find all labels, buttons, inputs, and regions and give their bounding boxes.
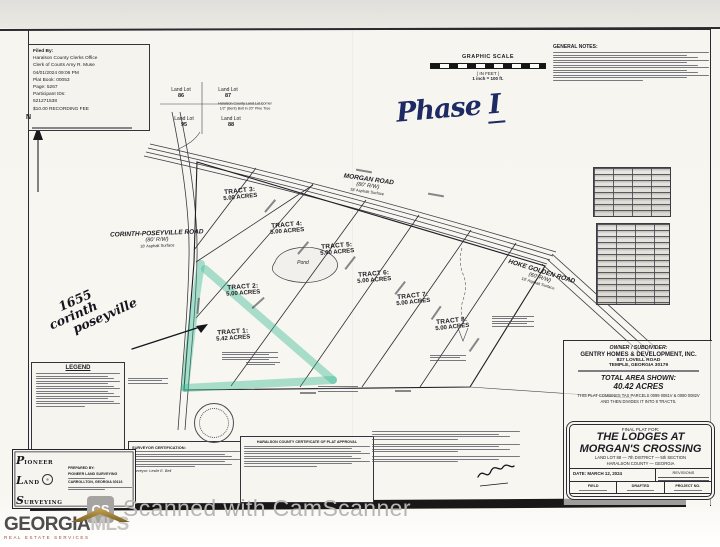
stamp-line: Filed By: [33, 48, 145, 55]
legend-title: LEGEND [36, 365, 120, 371]
prepared-by-block: PREPARED BY: PIONEER LAND SURVEYING CARR… [68, 466, 132, 491]
drainage-line [460, 248, 465, 324]
graphic-scale-title: GRAPHIC SCALE [428, 54, 548, 60]
land-lot-label: Land Lot95 [174, 116, 193, 128]
closure-statement-text [372, 431, 520, 466]
adjoiner-note [430, 355, 466, 362]
corinth-poseyville-road-label: CORINTH-POSEYVILLE ROAD (80' R/W) 18' As… [110, 228, 204, 249]
tract-1-label: TRACT 1:5.42 ACRES [216, 327, 251, 342]
plat-title-line2: MORGAN'S CROSSING [570, 444, 711, 456]
stamp-line: Plat Book: 00053 [33, 77, 145, 84]
total-area-value: 40.42 ACRES [566, 382, 711, 391]
adjoiner-note [246, 362, 280, 367]
plat-title-line1: THE LODGES AT [570, 432, 711, 444]
georgia-mls-logo: GEORGIAMLS REAL ESTATE SERVICES [4, 515, 129, 540]
clerk-filing-stamp: Filed By: Haralson County Clerks Office … [28, 44, 150, 131]
stamp-caption-line [32, 127, 132, 129]
scanned-plat-document: Filed By: Haralson County Clerks Office … [0, 0, 720, 547]
stamp-line: 04/01/2024 09:06 PM [33, 70, 145, 77]
camscanner-text: Scanned with CamScanner [123, 495, 411, 522]
general-notes-text [553, 52, 709, 81]
scale-ratio: 1 inch = 100 ft. [428, 76, 548, 81]
stamp-line: Clerk of Courts Amy R. Muse [33, 62, 145, 69]
land-lot-corner-note: Haralson County Land Lot Corner1/2" (Ben… [218, 101, 272, 110]
land-lot-label: Land Lot87 [218, 87, 237, 99]
land-lot-label: Land Lot86 [171, 87, 190, 99]
tract-2-label: TRACT 2:5.00 ACRES [226, 282, 261, 297]
surveyor-seal [194, 403, 234, 443]
stamp-line: Page: 5267 [33, 84, 145, 91]
plat-location-line2: HARALSON COUNTY — GEORGIA [570, 461, 711, 466]
revisions-cell: REVISIONS [656, 469, 711, 481]
stamp-line: 521271538 [33, 98, 145, 105]
owner-address: TEMPLE, GEORGIA 30179 [566, 363, 711, 368]
graphic-scale: GRAPHIC SCALE ( IN FEET ) 1 inch = 100 f… [428, 54, 548, 81]
line-table [593, 167, 671, 217]
stamp-line: Participant IDs: [33, 91, 145, 98]
highlighter-mark [185, 380, 333, 388]
county-approval-title: HARALSON COUNTY CERTIFICATE OF PLAT APPR… [244, 440, 370, 445]
compass-emblem-icon [42, 474, 53, 485]
general-notes-title: GENERAL NOTES: [553, 44, 709, 50]
mls-roof-icon [70, 506, 132, 523]
legend-box: LEGEND [31, 362, 125, 462]
adjoiner-note [128, 378, 168, 385]
deed-reference-line [578, 370, 700, 372]
easement-note [222, 352, 278, 362]
legend-items [36, 373, 120, 407]
surveyor-signer: Surveyor: Leslie E. Bell [132, 469, 240, 473]
county-approval-text [244, 446, 370, 467]
owner-block: OWNER / SUBDIVIDER: GENTRY HOMES & DEVEL… [566, 345, 711, 404]
approval-signature [478, 465, 514, 477]
pond-label: Pond [297, 260, 309, 266]
general-notes: GENERAL NOTES: [553, 44, 709, 82]
certification-title: SURVEYOR CERTIFICATION: [132, 445, 240, 450]
stamp-line: $10.00 RECORDING FEE [33, 106, 145, 113]
stamp-line: Haralson County Clerks Office [33, 55, 145, 62]
parcel-combine-note: THIS PLAT COMBINES TAX PARCELS 0099 0081… [566, 393, 711, 404]
adjoiner-note [492, 316, 534, 328]
adjoiner-note [318, 386, 358, 393]
land-lot-label: Land Lot88 [221, 116, 240, 128]
scale-bar [430, 63, 546, 69]
total-area-label: TOTAL AREA SHOWN: [566, 375, 711, 382]
curve-table [596, 223, 670, 305]
plat-date: DATE: MARCH 12, 2024 [570, 469, 656, 481]
owner-title: OWNER / SUBDIVIDER: [566, 345, 711, 351]
title-block: FINAL PLAT FOR: THE LODGES AT MORGAN'S C… [569, 424, 712, 497]
morgan-road-line [150, 144, 556, 252]
north-label: N [26, 114, 31, 121]
certification-text [132, 451, 240, 467]
mls-tagline: REAL ESTATE SERVICES [4, 535, 129, 540]
